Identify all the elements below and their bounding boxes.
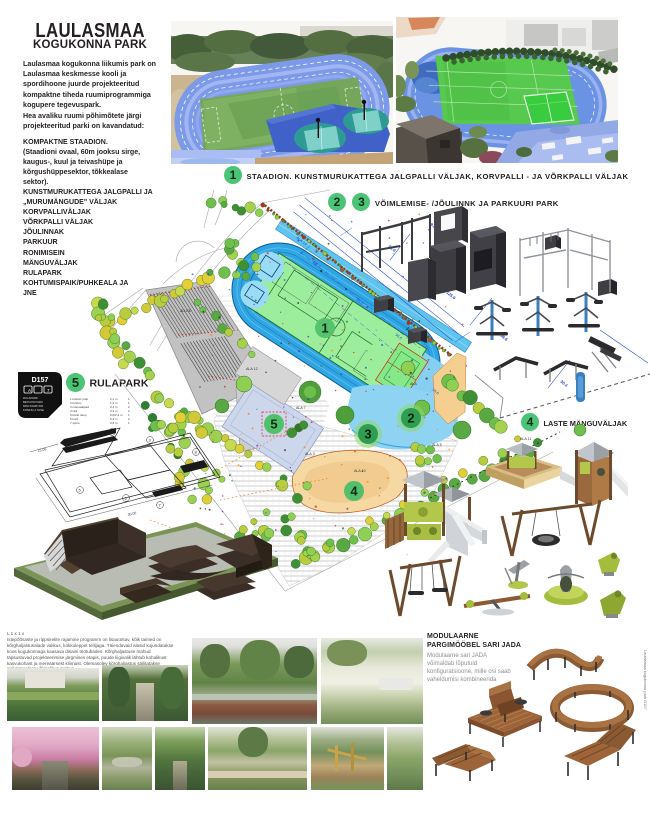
svg-text:A: A — [28, 388, 31, 393]
svg-text:ALA 5: ALA 5 — [432, 443, 442, 447]
svg-text:0,6 m: 0,6 m — [110, 421, 118, 425]
svg-text:1: 1 — [321, 321, 328, 336]
svg-text:ALA 3: ALA 3 — [305, 452, 315, 456]
svg-text:1: 1 — [128, 421, 130, 425]
svg-text:D157: D157 — [32, 377, 49, 384]
svg-text:5: 5 — [79, 488, 82, 493]
svg-text:ALA 12: ALA 12 — [246, 367, 258, 371]
svg-text:3: 3 — [149, 438, 152, 443]
svg-text:30.4: 30.4 — [559, 379, 569, 388]
svg-text:KONFIG 2 TASE: KONFIG 2 TASE — [23, 408, 44, 412]
svg-text:15.00: 15.00 — [37, 447, 47, 453]
svg-text:8: 8 — [195, 450, 198, 455]
svg-text:ALLEE: ALLEE — [180, 309, 192, 313]
svg-text:5: 5 — [270, 417, 277, 432]
svg-text:3: 3 — [364, 427, 371, 442]
svg-text:ALA 10: ALA 10 — [354, 469, 366, 473]
svg-text:7 spine: 7 spine — [70, 421, 80, 425]
svg-text:4: 4 — [350, 484, 358, 499]
svg-text:ALA 11: ALA 11 — [520, 437, 531, 441]
svg-text:7: 7 — [159, 503, 162, 508]
svg-text:ALA: ALA — [410, 382, 417, 386]
svg-text:2: 2 — [407, 411, 414, 426]
svg-text:30.00: 30.00 — [127, 511, 137, 517]
svg-text:6: 6 — [125, 496, 128, 501]
svg-text:ALA 7: ALA 7 — [296, 406, 306, 410]
